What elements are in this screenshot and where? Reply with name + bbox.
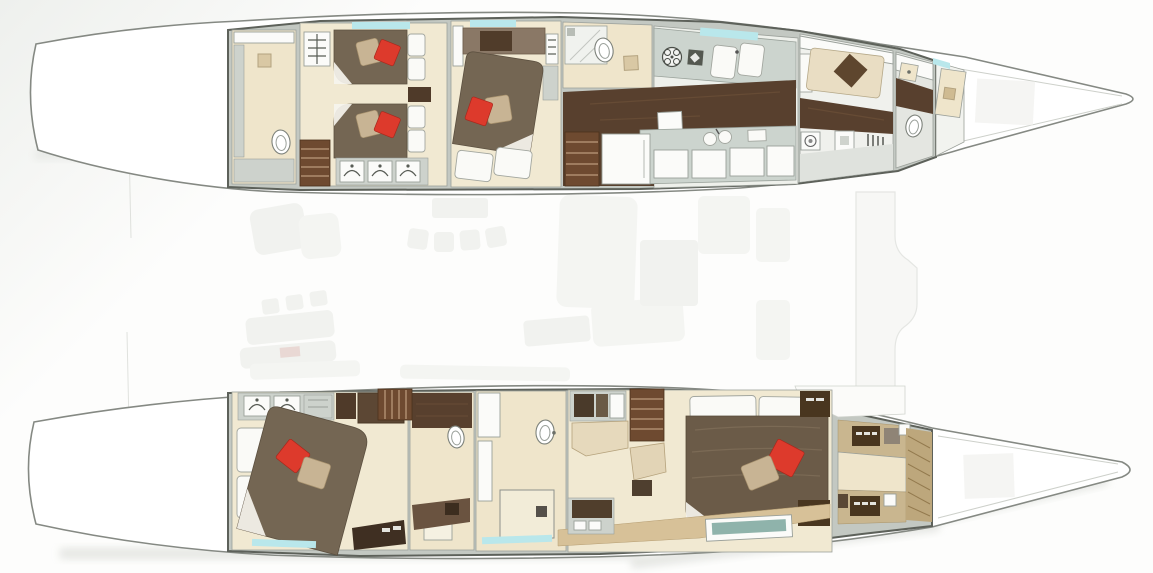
pillow-white: [408, 106, 425, 128]
nav-station-ghost: [640, 240, 698, 306]
bathroom-sole-dark-wood: [412, 393, 472, 428]
locker-door: [835, 131, 854, 151]
foredeck-locker-ghost: [975, 79, 1035, 126]
pillow-white: [408, 58, 425, 80]
room-master-bathroom: [476, 391, 566, 551]
bench-window-seat: [705, 515, 792, 541]
side-unit-ghost: [756, 208, 790, 262]
room-walk-in-wardrobe: [838, 420, 932, 524]
cooktop-icon: [663, 48, 682, 67]
room-vip-guest-cabin: [451, 20, 561, 187]
ladder-icon: [304, 32, 330, 66]
double-bed-vip: [453, 51, 545, 182]
floorplan-svg: [0, 0, 1153, 573]
shower-drain: [536, 506, 547, 517]
room-fore-head: [896, 52, 933, 168]
nightstand: [408, 87, 431, 102]
room-guest-bathroom-port: [563, 22, 652, 88]
shower: [500, 490, 554, 538]
hull-window: [352, 22, 410, 29]
foot-cushion: [454, 150, 493, 182]
bidet: [624, 56, 639, 71]
room-aft-bathroom: [232, 30, 296, 184]
sink-small: [748, 130, 766, 142]
washer-icon: [801, 132, 820, 150]
faucet: [735, 50, 739, 54]
room-forepeak-locker: [933, 58, 966, 156]
foredeck-locker-ghost: [963, 453, 1015, 499]
fridge-cabinet: [602, 134, 650, 184]
aft-bench-ghost-2: [400, 365, 570, 382]
bedside-cabinet-top: [800, 391, 830, 417]
companionway-stairs: [630, 389, 664, 441]
companionway-stairs-aft: [378, 389, 412, 420]
vanity-white: [478, 393, 500, 437]
companionway-stairs: [300, 140, 330, 186]
lower-cabinet-fronts: [654, 146, 794, 178]
yacht-floorplan-canvas: [0, 0, 1153, 573]
cabinet-dark: [336, 393, 356, 419]
ladder-icon: [546, 34, 558, 64]
pillow-white: [408, 34, 425, 56]
shower-fixture: [258, 54, 271, 67]
saloon-unit-ghost: [698, 196, 750, 254]
cabinet-small: [632, 480, 652, 496]
dining-table-ghost: [432, 198, 488, 218]
galley-box: [658, 111, 683, 130]
closet-unit-small: [838, 494, 848, 508]
wardrobe: [336, 158, 428, 185]
headboard-panel: [480, 31, 512, 51]
closet-aisle: [838, 452, 906, 492]
angled-bulkhead: [906, 428, 932, 522]
room-twin-guest-cabin: [300, 22, 447, 186]
single-bed-bottom: [334, 104, 425, 158]
wardrobe: [543, 66, 558, 100]
vanity-aft: [568, 498, 614, 534]
crew-berth: [806, 48, 885, 99]
companionway-stairs: [565, 132, 599, 186]
room-master-cabin: [558, 389, 832, 552]
cabinet-white: [478, 441, 492, 501]
room-crew-cabin: [800, 34, 893, 182]
sink-basin: [737, 43, 765, 78]
hull-window: [470, 20, 516, 27]
room-guest-bathroom-starboard: [410, 392, 474, 550]
locker-hatch: [943, 87, 955, 99]
pillow-white: [408, 130, 425, 152]
oven-icon: [687, 49, 703, 65]
desk-cabinet: [570, 391, 626, 421]
foot-cushion: [493, 147, 532, 179]
closet-unit: [884, 428, 900, 444]
vanity-sink: [445, 503, 459, 515]
sink-basin: [710, 45, 738, 80]
side-unit-ghost-2: [756, 300, 790, 360]
